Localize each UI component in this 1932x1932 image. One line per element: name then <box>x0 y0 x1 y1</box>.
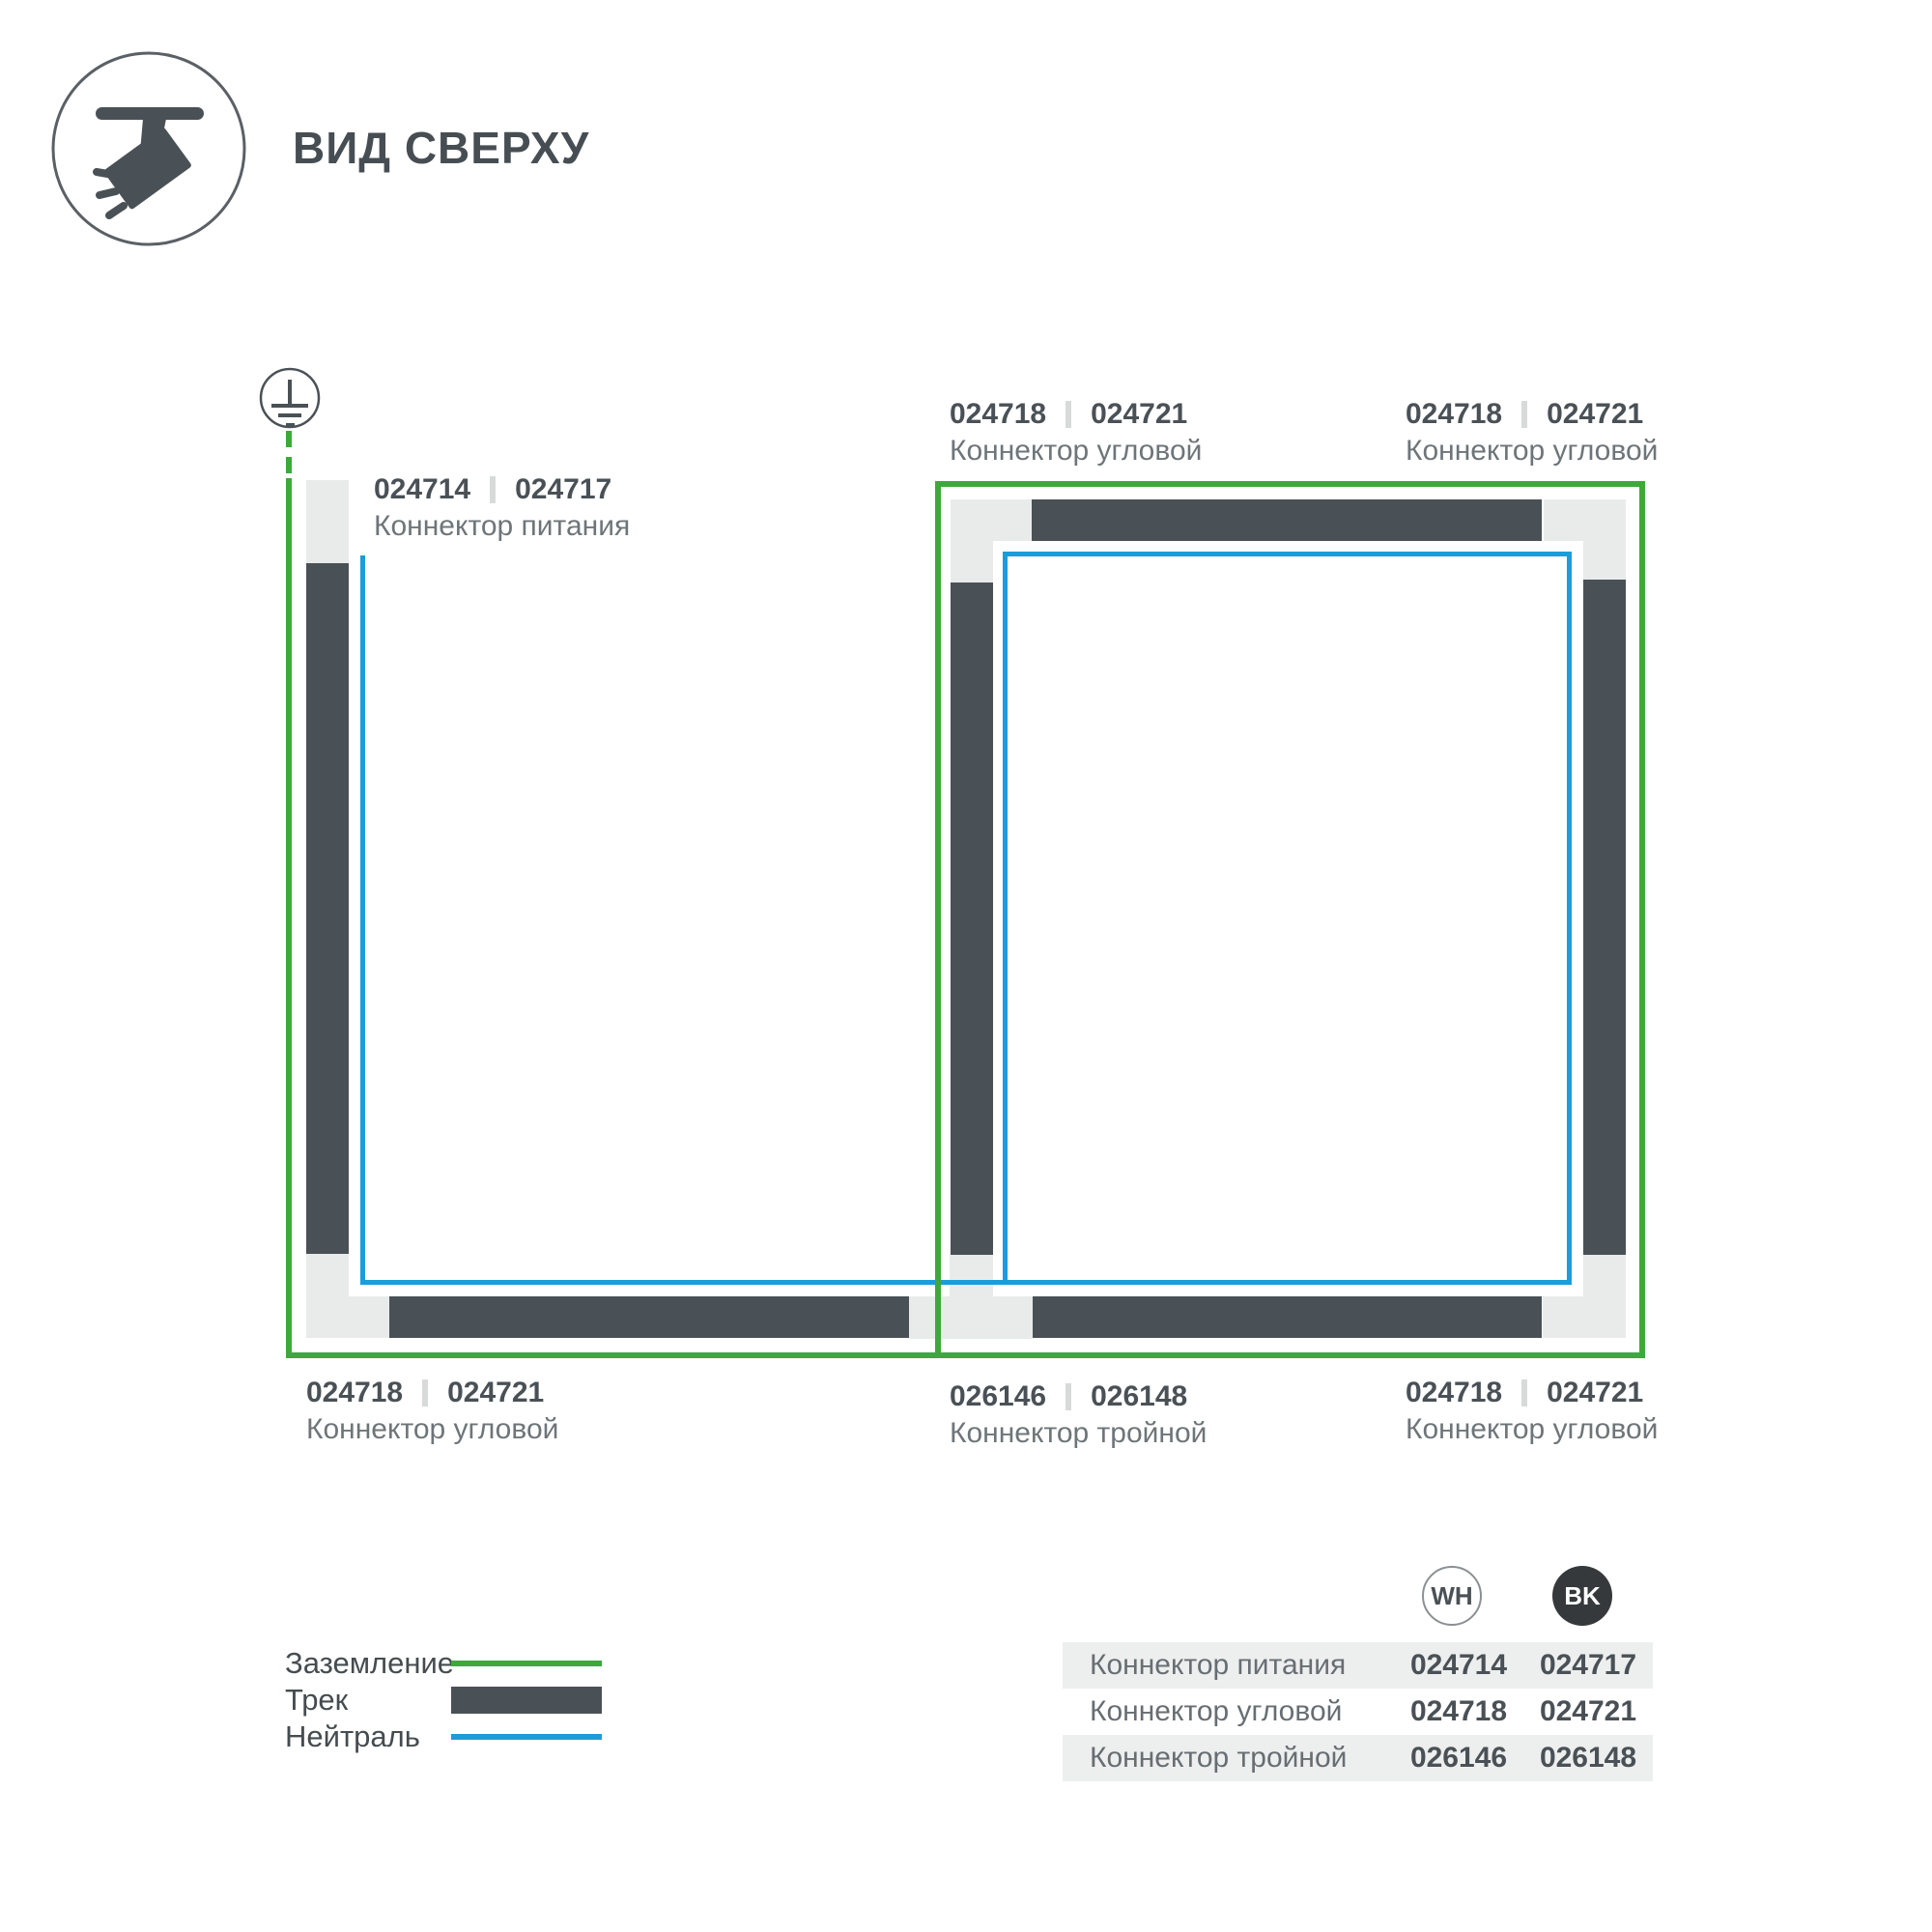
table-row: Коннектор тройной 026146 026148 <box>1063 1735 1653 1781</box>
triple-connector-shape <box>909 1255 1033 1339</box>
part-name: Коннектор угловой <box>1406 435 1658 468</box>
part-code-wh: 026146 <box>950 1381 1046 1412</box>
code-divider <box>1521 1379 1527 1406</box>
part-name: Коннектор угловой <box>950 435 1202 468</box>
corner-connector-top-left-shape <box>951 499 1032 582</box>
row-code-bk: 026148 <box>1523 1742 1653 1775</box>
part-code-bk: 024721 <box>1091 399 1187 430</box>
neutral-line-swatch <box>451 1734 602 1740</box>
legend: Заземление Трек Нейтраль <box>285 1645 602 1755</box>
part-name: Коннектор угловой <box>306 1413 558 1446</box>
part-code-wh: 024718 <box>1406 1378 1502 1408</box>
parts-table: WH BK Коннектор питания 024714 024717 Ко… <box>1063 1566 1653 1781</box>
row-code-wh: 024718 <box>1394 1695 1523 1728</box>
part-codes: 024718 024721 <box>1406 1378 1658 1408</box>
part-name: Коннектор угловой <box>1406 1413 1658 1446</box>
row-code-wh: 026146 <box>1394 1742 1523 1775</box>
ground-line-swatch <box>451 1661 602 1666</box>
track-segments <box>306 499 1626 1338</box>
color-badges: WH BK <box>1063 1566 1653 1642</box>
table-row: Коннектор угловой 024718 024721 <box>1063 1689 1653 1735</box>
label-power-connector: 024714 024717 Коннектор питания <box>374 474 630 543</box>
code-divider <box>490 476 496 503</box>
table-row: Коннектор питания 024714 024717 <box>1063 1642 1653 1689</box>
part-code-wh: 024714 <box>374 474 470 505</box>
part-code-wh: 024718 <box>1406 399 1502 430</box>
row-part-name: Коннектор тройной <box>1063 1742 1394 1775</box>
legend-row-ground: Заземление <box>285 1645 602 1682</box>
legend-label: Нейтраль <box>285 1719 451 1754</box>
part-code-bk: 024721 <box>1547 1378 1643 1408</box>
label-corner-connector-bottom-right: 024718 024721 Коннектор угловой <box>1406 1378 1658 1446</box>
label-corner-connector-top-mid: 024718 024721 Коннектор угловой <box>950 399 1202 468</box>
part-code-wh: 024718 <box>950 399 1046 430</box>
row-part-name: Коннектор угловой <box>1063 1695 1394 1728</box>
code-divider <box>422 1379 428 1406</box>
code-divider <box>1065 1383 1071 1410</box>
label-corner-connector-top-right: 024718 024721 Коннектор угловой <box>1406 399 1658 468</box>
row-part-name: Коннектор питания <box>1063 1649 1394 1682</box>
track-swatch <box>451 1687 602 1714</box>
part-codes: 024718 024721 <box>306 1378 558 1408</box>
part-code-bk: 024717 <box>515 474 611 505</box>
legend-label: Трек <box>285 1683 451 1718</box>
code-divider <box>1065 401 1071 428</box>
label-triple-connector: 026146 026148 Коннектор тройной <box>950 1381 1207 1450</box>
page: ВИД СВЕРХУ <box>0 0 1932 1932</box>
code-divider <box>1521 401 1527 428</box>
part-name: Коннектор питания <box>374 510 630 543</box>
row-code-bk: 024721 <box>1523 1695 1653 1728</box>
corner-connector-bottom-left-shape <box>306 1254 389 1338</box>
row-code-bk: 024717 <box>1523 1649 1653 1682</box>
row-code-wh: 024714 <box>1394 1649 1523 1682</box>
ground-symbol-icon <box>261 369 319 427</box>
label-corner-connector-bottom-left: 024718 024721 Коннектор угловой <box>306 1378 558 1446</box>
part-codes: 026146 026148 <box>950 1381 1207 1412</box>
black-color-badge: BK <box>1552 1566 1612 1626</box>
part-code-bk: 026148 <box>1091 1381 1187 1412</box>
part-name: Коннектор тройной <box>950 1417 1207 1450</box>
part-code-bk: 024721 <box>447 1378 544 1408</box>
power-connector-shape <box>306 480 349 563</box>
part-code-bk: 024721 <box>1547 399 1643 430</box>
part-code-wh: 024718 <box>306 1378 403 1408</box>
legend-row-track: Трек <box>285 1682 602 1719</box>
corner-connector-bottom-right-shape <box>1543 1255 1626 1338</box>
legend-row-neutral: Нейтраль <box>285 1719 602 1755</box>
legend-label: Заземление <box>285 1646 451 1681</box>
part-codes: 024718 024721 <box>950 399 1202 430</box>
part-codes: 024714 024717 <box>374 474 630 505</box>
part-codes: 024718 024721 <box>1406 399 1658 430</box>
white-color-badge: WH <box>1422 1566 1482 1626</box>
corner-connector-top-right-shape <box>1544 499 1626 580</box>
